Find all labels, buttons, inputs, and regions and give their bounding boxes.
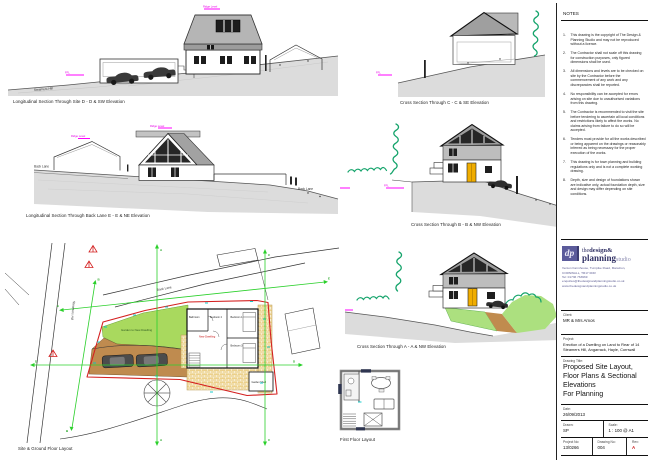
- bed: [243, 313, 256, 332]
- dp-logo-icon: dp: [562, 246, 579, 261]
- back-lane-label: Back Lane: [156, 285, 172, 292]
- neighbour-building: [217, 249, 258, 267]
- caption-cross-section-a: Cross Section Through A - A & NW Elevati…: [357, 344, 446, 349]
- caption-site-plan: Site & Ground Floor Layout: [18, 446, 73, 451]
- room-label-bedroom1: Bedroom 1: [231, 316, 244, 319]
- svg-text:B: B: [66, 429, 69, 433]
- ffl-label: FFL: [65, 70, 70, 74]
- project-no-value: 13/0266: [563, 445, 590, 450]
- post: [516, 176, 518, 194]
- date-field: Date: 26/09/2013: [561, 405, 648, 420]
- rev-label: Rev:: [632, 440, 646, 444]
- hedge: [357, 296, 389, 300]
- svg-text:A: A: [160, 248, 163, 252]
- date-label: Date:: [563, 407, 646, 411]
- shed-label: Garden Shed: [252, 381, 267, 384]
- drawing-sheet: Steamers Hill FFL Ridge Level: [0, 0, 655, 463]
- drawing-title-line: Proposed Site Layout,: [563, 363, 646, 372]
- client-field: Client: MR & Mrs Amos: [561, 311, 648, 334]
- grass-bank: [445, 308, 497, 332]
- ridge-label: Ridge Level: [203, 5, 218, 9]
- title-block-column: NOTES 1.This drawing is the copyright of…: [556, 3, 652, 460]
- caption-cross-section-b: Cross Section Through B - B & NW Elevati…: [411, 222, 501, 227]
- long-section-back-lane-drawing: Back Lane Back Lane Ridge Level Ridge Le…: [8, 124, 338, 216]
- project-label: Project:: [563, 337, 646, 341]
- window-opening: [356, 427, 365, 430]
- porch-steps: [429, 286, 443, 298]
- scale-label: Scale:: [609, 423, 647, 427]
- road-label-right: Back Lane: [298, 187, 313, 191]
- cross-section-a-drawing: [345, 250, 560, 348]
- garden-label: Garden to New Dwelling: [121, 328, 153, 332]
- neighbour-building: [285, 308, 320, 354]
- ffl-label: FFL: [384, 183, 389, 187]
- notes-panel: NOTES 1.This drawing is the copyright of…: [561, 3, 648, 239]
- hedge: [533, 11, 538, 56]
- neighbour-gable-outline: [54, 142, 120, 171]
- note-item: 7.This drawing is for town planning and …: [563, 160, 646, 174]
- room-label-bedroom3: Bedroom 3: [231, 345, 244, 348]
- dormer-window: [216, 20, 240, 32]
- note-item: 1.This drawing is the copyright of The D…: [563, 33, 646, 47]
- house-section: [441, 125, 503, 183]
- caption-long-section-site: Longitudinal Section Through Site D - D …: [13, 99, 125, 104]
- project-value: Erection of a Dwelling on Land to Rear o…: [563, 342, 646, 352]
- house-section: [451, 13, 518, 65]
- drawing-title-line: Elevations: [563, 381, 646, 390]
- room-label-bedroom2: Bedroom 2: [210, 316, 223, 319]
- caption-first-floor: First Floor Layout: [340, 437, 375, 442]
- svg-text:C: C: [268, 438, 271, 442]
- note-item: 5.The Contractor is recommended to visit…: [563, 110, 646, 133]
- post: [127, 165, 128, 172]
- studio-name: thedesign& planningstudio: [582, 246, 631, 264]
- note-item: 6.Tenders must provide for all the works…: [563, 137, 646, 155]
- svg-text:E: E: [328, 277, 330, 281]
- scale-value: 1 : 100 @ A1: [609, 428, 647, 433]
- car-plan: [102, 354, 134, 368]
- svg-text:B: B: [98, 278, 101, 282]
- note-item: 4.No responsibility can be accepted for …: [563, 92, 646, 106]
- sofa: [374, 399, 394, 409]
- svg-text:D: D: [293, 360, 296, 364]
- house-elevation: [136, 131, 214, 181]
- notes-title: NOTES: [563, 11, 646, 16]
- svg-text:A: A: [160, 438, 163, 442]
- svg-text:E: E: [57, 304, 59, 308]
- new-dwelling-label: New Dwelling: [199, 335, 216, 339]
- stair-void: [364, 413, 382, 426]
- drawing-no-label: Drawing No:: [598, 440, 625, 444]
- client-label: Client:: [563, 313, 646, 317]
- date-value: 26/09/2013: [563, 412, 646, 417]
- house-section: [441, 253, 507, 308]
- drawing-no-field: Drawing No: 004: [592, 438, 627, 455]
- ridge-label: Ridge Level: [150, 124, 165, 128]
- hedge: [396, 252, 402, 291]
- house-elevation: [184, 15, 262, 74]
- ridge-label: Ridge Level: [71, 134, 86, 138]
- logo-block: dp thedesign& planningstudio Venton Farm…: [561, 240, 648, 310]
- steamers-hill-label: Steamers Hill: [70, 301, 76, 321]
- cross-section-b-drawing: FFL: [340, 120, 565, 236]
- rev-value: A: [632, 445, 646, 450]
- room-label-bathroom: Bathroom: [189, 316, 200, 319]
- drawn-field: Drawn: SP: [561, 421, 603, 437]
- first-floor-plan-drawing: [337, 368, 409, 440]
- caption-long-section-back-lane: Longitudinal Section Through Back Lane E…: [26, 213, 150, 218]
- cross-section-c-drawing: FFL: [340, 3, 565, 99]
- note-item: 8.Depth, size and design of foundations …: [563, 178, 646, 196]
- note-item: 2.The Contractor shall not scale off thi…: [563, 51, 646, 65]
- project-field: Project: Erection of a Dwelling on Land …: [561, 335, 648, 356]
- hedge: [391, 124, 399, 174]
- post: [424, 60, 426, 78]
- drawing-title-line: For Planning: [563, 390, 646, 399]
- kitchen-counter: [344, 374, 359, 400]
- ffl-label: FFL: [376, 70, 381, 74]
- divider: [561, 455, 648, 456]
- drawing-no-value: 004: [598, 445, 625, 450]
- drawing-title-line: Floor Plans & Sectional: [563, 372, 646, 381]
- svg-text:C: C: [268, 253, 271, 257]
- drawn-label: Drawn:: [563, 423, 601, 427]
- site-plan-drawing: Garden to New Dwelling Garden Shed: [5, 243, 340, 455]
- hedge: [348, 168, 387, 172]
- long-section-site-drawing: Steamers Hill FFL Ridge Level: [8, 4, 338, 96]
- drawn-value: SP: [563, 428, 601, 433]
- bed: [243, 344, 256, 363]
- project-no-label: Project No:: [563, 440, 590, 444]
- house-plan: Bathroom Bedroom 2 Bedroom 1 Bedroom 3 N…: [187, 309, 258, 368]
- porch-steps: [430, 163, 444, 175]
- road-label-left: Back Lane: [34, 165, 49, 169]
- studio-address: Venton Farmhouse, Turnpike Road, Marazio…: [562, 266, 647, 288]
- caption-cross-section-c: Cross Section Through C - C & SE Elevati…: [400, 100, 489, 105]
- note-item: 3.All dimensions and levels are to be ch…: [563, 69, 646, 87]
- scale-field: Scale: 1 : 100 @ A1: [603, 421, 649, 437]
- drawing-title-field: Drawing Title: Proposed Site Layout, Flo…: [561, 357, 648, 404]
- window-opening: [361, 369, 371, 372]
- rev-field: Rev: A: [626, 438, 648, 455]
- project-no-field: Project No: 13/0266: [561, 438, 592, 455]
- client-value: MR & Mrs Amos: [563, 318, 646, 323]
